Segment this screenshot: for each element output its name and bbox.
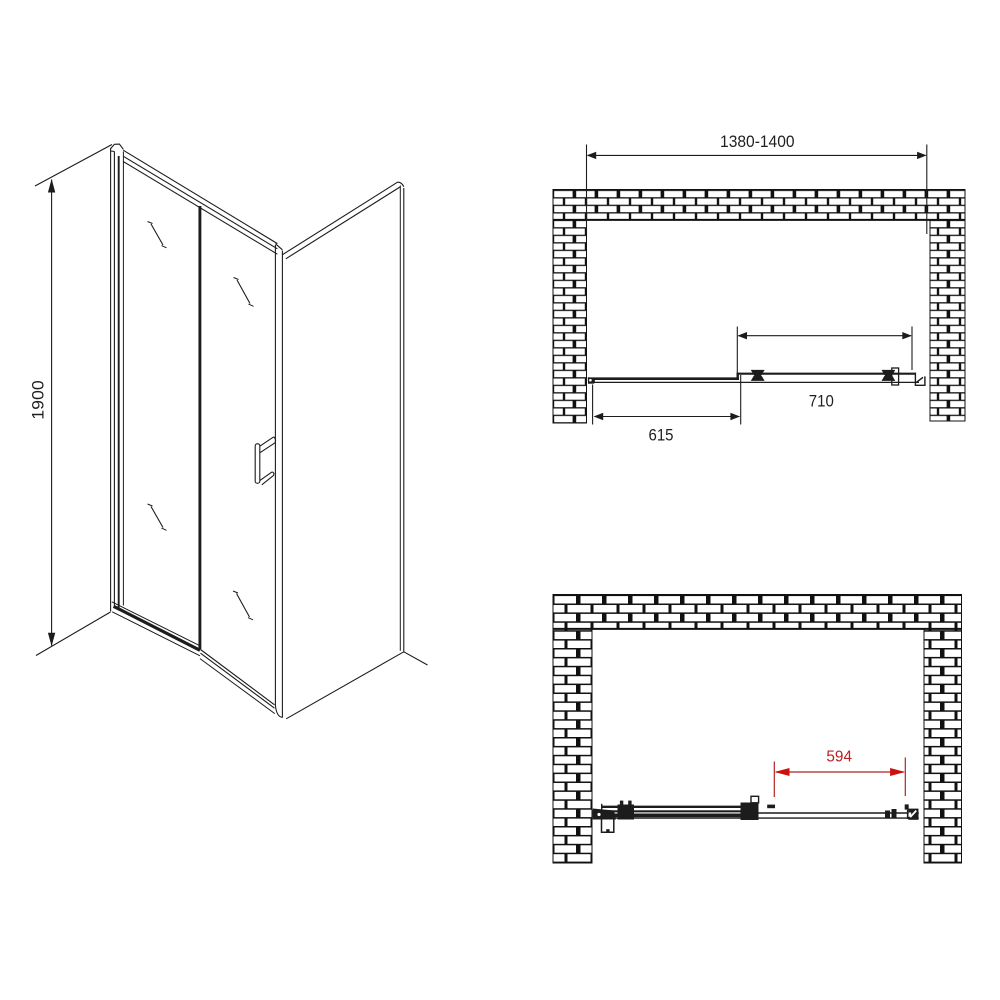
svg-text:710: 710 (809, 393, 834, 411)
svg-text:594: 594 (826, 749, 852, 766)
svg-text:615: 615 (649, 426, 674, 444)
svg-text:1900: 1900 (30, 380, 48, 420)
svg-text:1380-1400: 1380-1400 (720, 132, 795, 151)
